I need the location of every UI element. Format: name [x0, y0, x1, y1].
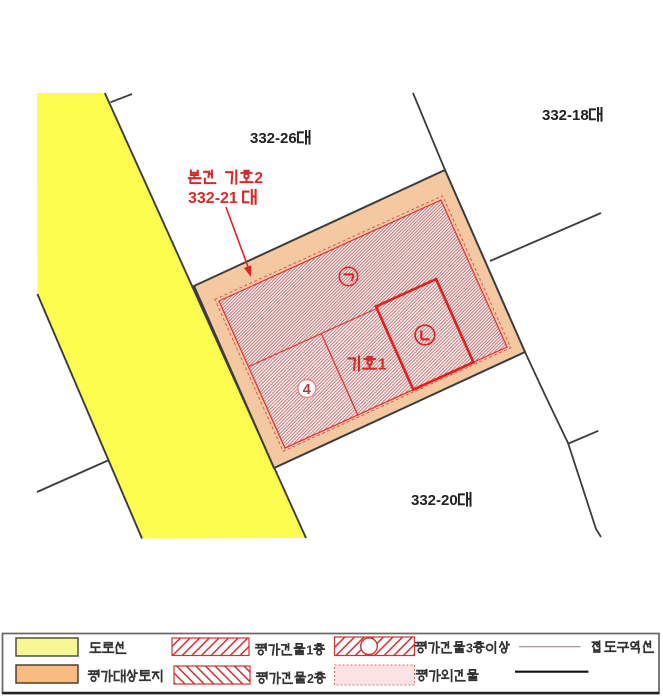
svg-text:2: 2 — [254, 170, 263, 187]
svg-text:332-20: 332-20 — [411, 492, 458, 509]
svg-text:1: 1 — [306, 644, 313, 658]
svg-text:2: 2 — [307, 672, 314, 686]
svg-text:1: 1 — [378, 357, 387, 374]
svg-text:332-18: 332-18 — [542, 107, 589, 124]
svg-text:3: 3 — [466, 642, 473, 656]
svg-text:332-21: 332-21 — [188, 190, 238, 207]
svg-text:332-26: 332-26 — [250, 130, 297, 147]
svg-text:4: 4 — [303, 382, 311, 398]
